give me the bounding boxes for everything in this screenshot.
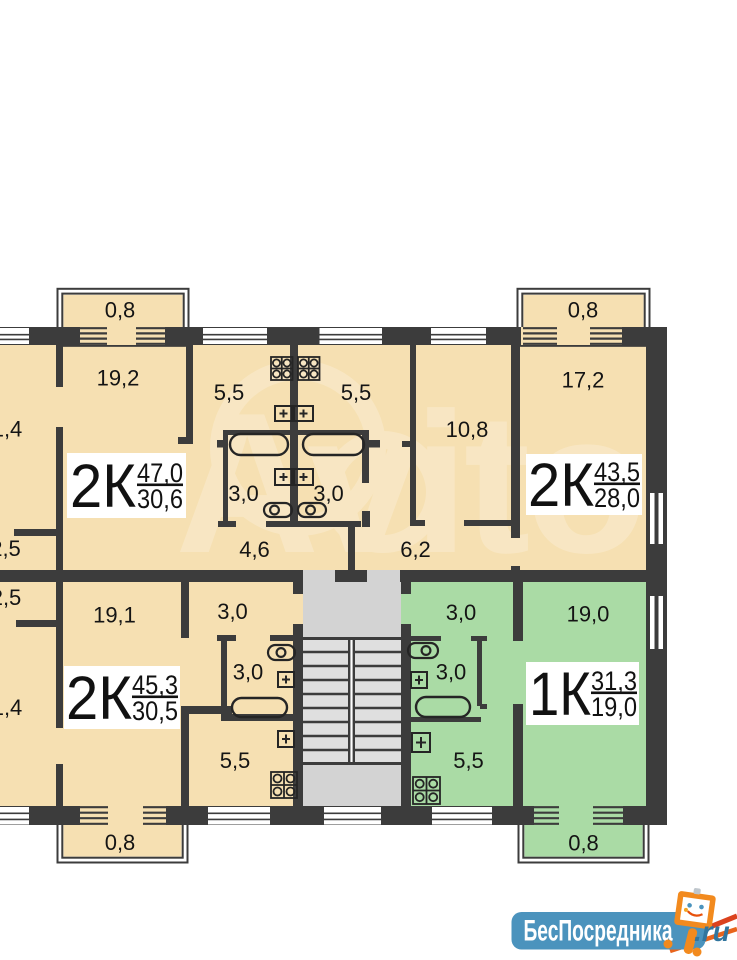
svg-text:30,5: 30,5 xyxy=(132,696,178,726)
svg-text:5,5: 5,5 xyxy=(220,748,251,773)
svg-text:1К: 1К xyxy=(529,660,591,728)
svg-text:1,4: 1,4 xyxy=(0,417,22,442)
svg-text:2,5: 2,5 xyxy=(0,585,21,610)
svg-text:.ru: .ru xyxy=(694,916,730,947)
svg-text:БесПосредника: БесПосредника xyxy=(524,915,673,948)
svg-text:2К: 2К xyxy=(70,452,136,520)
svg-text:5,5: 5,5 xyxy=(453,748,484,773)
svg-text:6,2: 6,2 xyxy=(400,537,431,562)
svg-text:19,0: 19,0 xyxy=(591,692,637,722)
svg-text:5,5: 5,5 xyxy=(214,380,245,405)
svg-text:3,0: 3,0 xyxy=(228,481,259,506)
svg-text:28,0: 28,0 xyxy=(594,483,640,513)
svg-text:17,2: 17,2 xyxy=(562,368,605,393)
svg-text:3,0: 3,0 xyxy=(233,660,264,685)
svg-text:19,0: 19,0 xyxy=(567,602,610,627)
svg-text:0,8: 0,8 xyxy=(105,830,136,855)
svg-text:2К: 2К xyxy=(528,451,594,519)
svg-text:5,5: 5,5 xyxy=(341,380,372,405)
svg-text:3,0: 3,0 xyxy=(313,481,344,506)
svg-text:0,8: 0,8 xyxy=(568,831,599,856)
svg-text:3,0: 3,0 xyxy=(436,660,467,685)
svg-text:0,8: 0,8 xyxy=(568,298,599,323)
svg-text:4,6: 4,6 xyxy=(239,537,270,562)
svg-text:19,1: 19,1 xyxy=(93,603,136,628)
svg-text:0,8: 0,8 xyxy=(105,298,136,323)
svg-text:3,0: 3,0 xyxy=(446,600,477,625)
svg-text:1,4: 1,4 xyxy=(0,695,22,720)
svg-text:3,0: 3,0 xyxy=(217,599,248,624)
svg-text:2,5: 2,5 xyxy=(0,536,21,561)
svg-text:2К: 2К xyxy=(66,664,132,732)
svg-text:19,2: 19,2 xyxy=(97,366,140,391)
svg-text:30,6: 30,6 xyxy=(137,484,183,514)
svg-text:10,8: 10,8 xyxy=(446,417,489,442)
